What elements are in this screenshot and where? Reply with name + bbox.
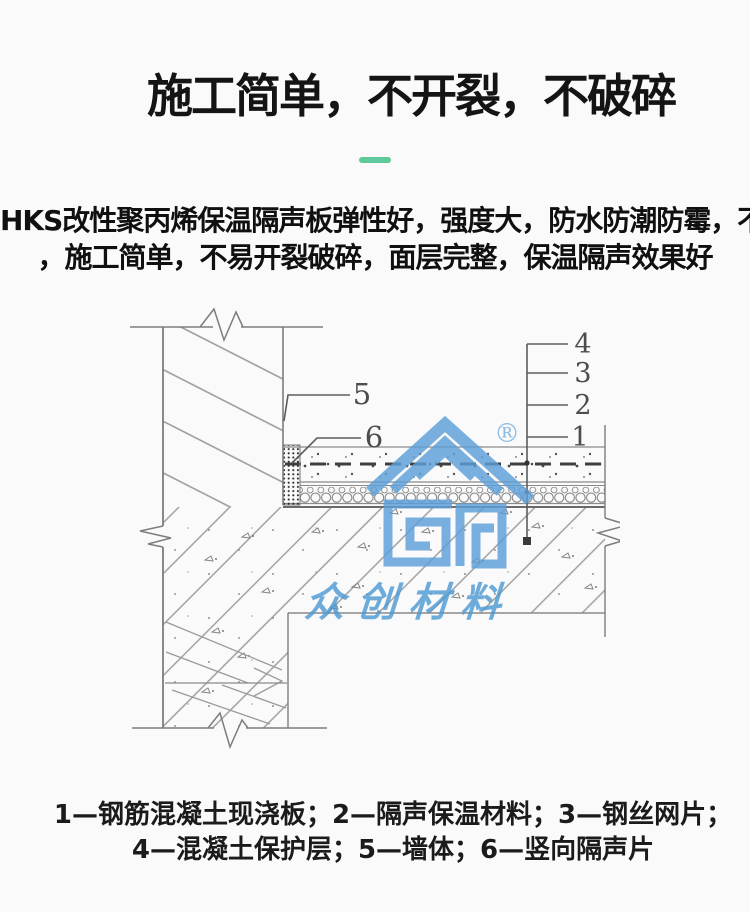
watermark-brand-text: 众创材料 [303, 579, 514, 626]
insulation-layer [300, 486, 605, 503]
callout-1: 1 [571, 422, 588, 453]
callout-5: 5 [353, 377, 371, 411]
mesh-node-dot [524, 460, 529, 465]
legend-line-1: 1—钢筋混凝土现浇板；2—隔声保温材料；3—钢丝网片； [18, 798, 750, 833]
callout-numbers: 4 3 2 1 5 6 [353, 329, 592, 454]
callout-4: 4 [574, 329, 591, 360]
legend-line-2: 4—混凝土保护层；5—墙体；6—竖向隔声片 [18, 833, 750, 868]
intro-paragraph: HKS改性聚丙烯保温隔声板弹性好，强度大，防水防潮防霉，不惧重压 ，施工简单，不… [0, 202, 750, 276]
callout-6: 6 [365, 420, 383, 454]
accent-divider [359, 157, 391, 163]
intro-line-1: HKS改性聚丙烯保温隔声板弹性好，强度大，防水防潮防霉，不惧重压 [0, 202, 750, 239]
intro-line-2: ，施工简单，不易开裂破碎，面层完整，保温隔声效果好 [0, 239, 750, 276]
vertical-sound-strip [283, 445, 300, 505]
diagram-legend: 1—钢筋混凝土现浇板；2—隔声保温材料；3—钢丝网片； 4—混凝土保护层；5—墙… [18, 798, 750, 868]
page-root: { "header": { "title": "施工简单，不开裂，不破碎", "… [0, 0, 750, 912]
wall-hatch [163, 327, 283, 507]
registered-mark: ® [494, 419, 520, 449]
leader-end-dot [523, 537, 531, 545]
construction-detail-diagram: 4 3 2 1 5 6 ® 众创材料 [130, 300, 620, 760]
diagram-svg: 4 3 2 1 5 6 ® 众创材料 [130, 300, 620, 760]
callout-3: 3 [574, 358, 591, 389]
callout-2: 2 [574, 390, 591, 421]
page-title: 施工简单，不开裂，不破碎 [36, 60, 750, 126]
